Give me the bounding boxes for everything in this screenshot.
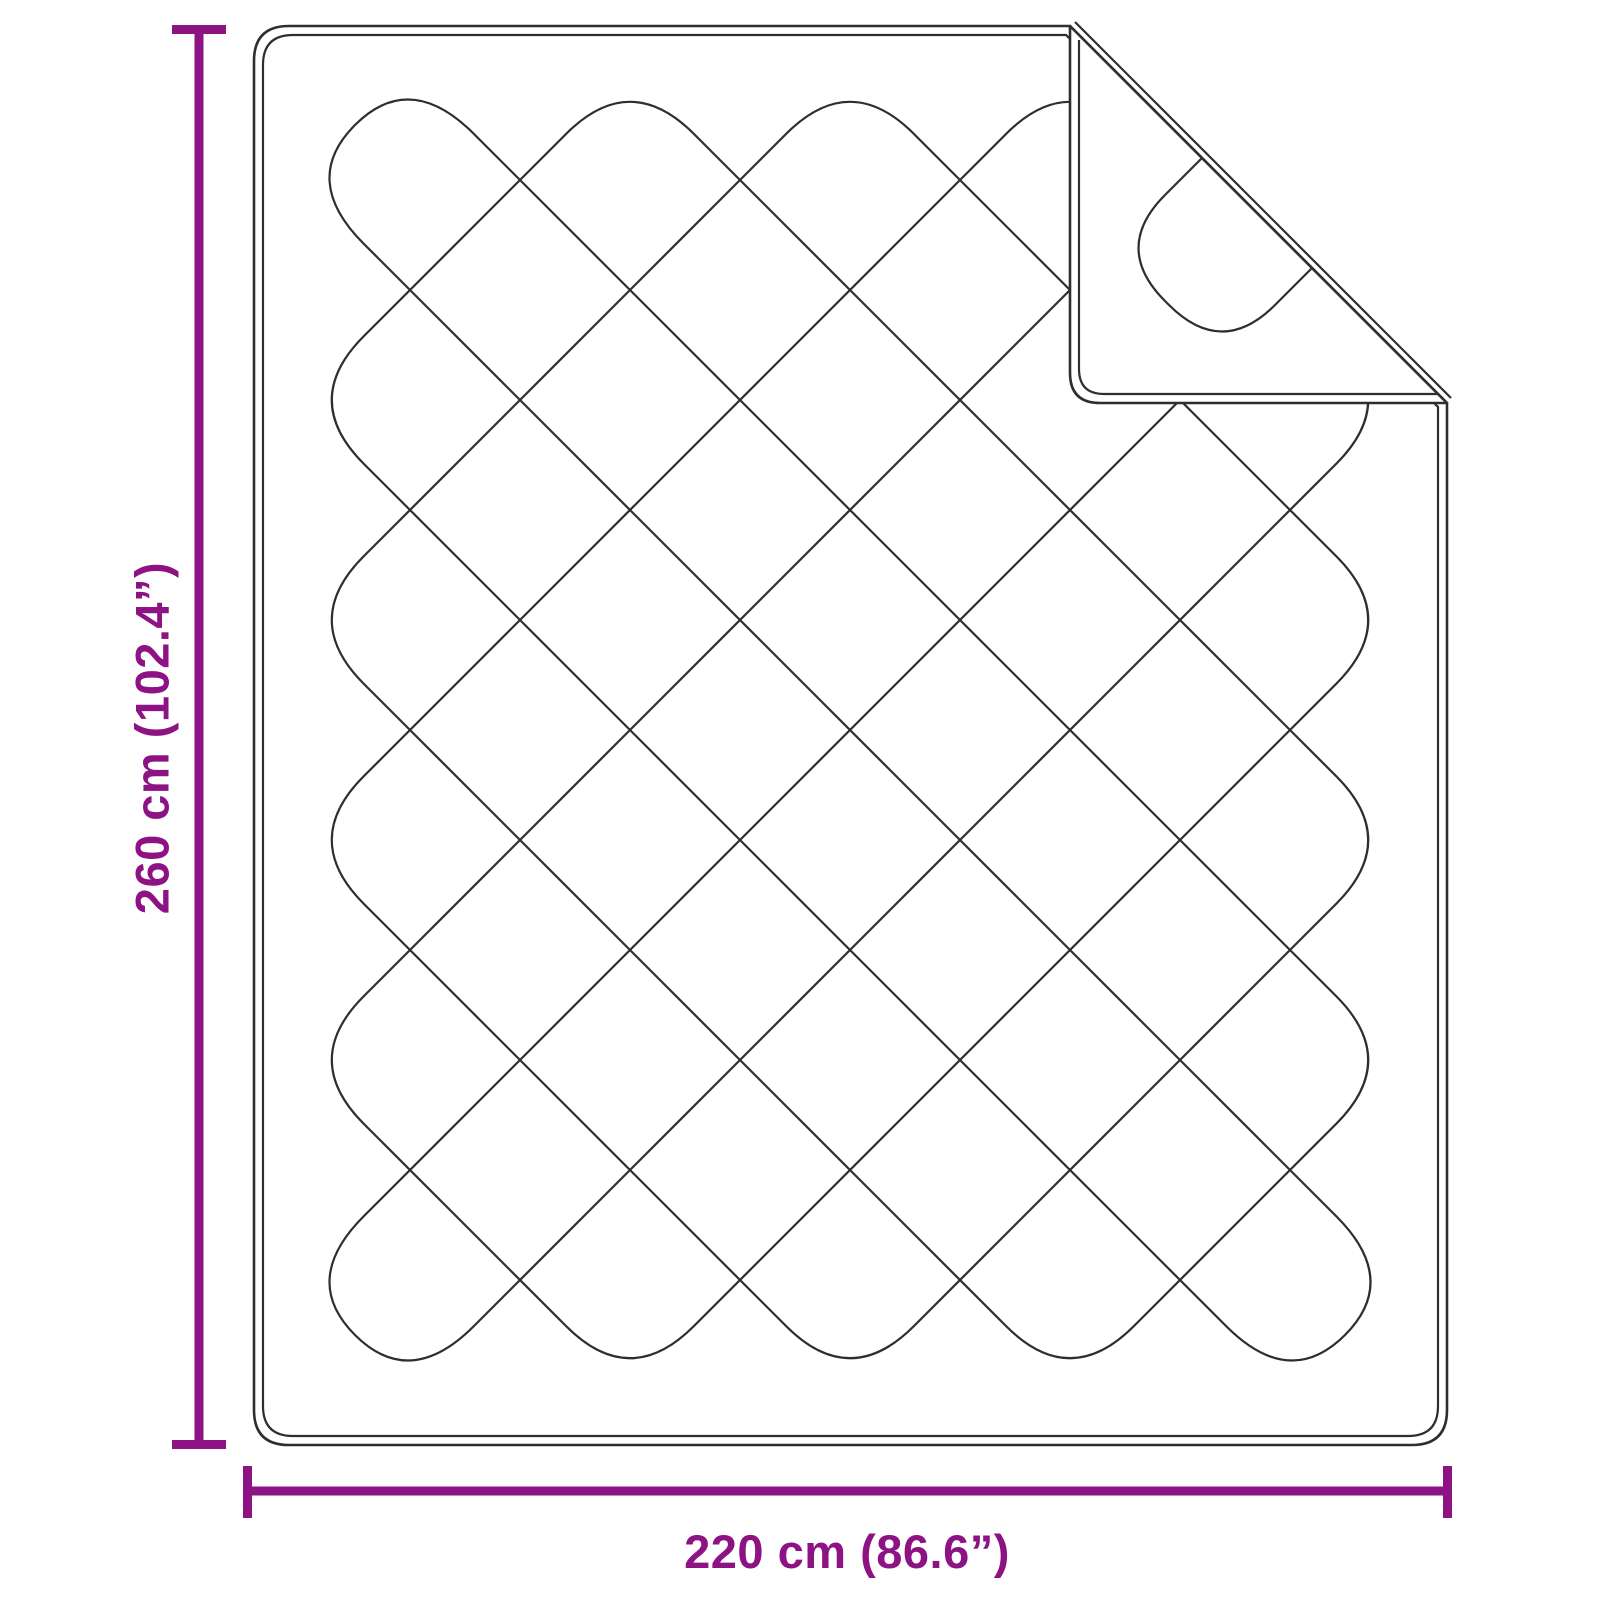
width-dimension-label: 220 cm (86.6”) [684, 1525, 1010, 1578]
fold-flap-shape [1070, 26, 1447, 403]
product-dimension-diagram: 260 cm (102.4”) 220 cm (86.6”) [0, 0, 1600, 1600]
fold-flap [1070, 26, 1447, 403]
blanket-diagram-canvas: 260 cm (102.4”) 220 cm (86.6”) [0, 0, 1600, 1600]
height-dimension-label: 260 cm (102.4”) [125, 562, 178, 914]
